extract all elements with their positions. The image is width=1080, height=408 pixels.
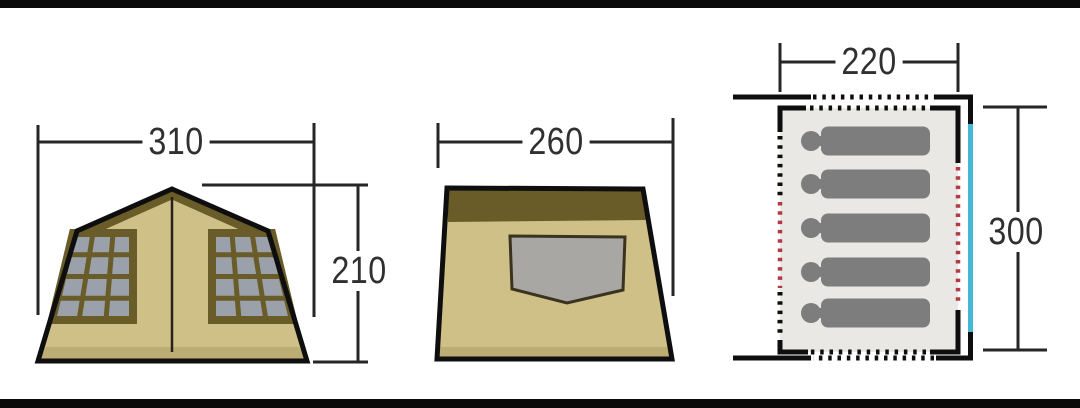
plan-length-label: 300 [982, 212, 1049, 252]
side-depth-label: 260 [522, 122, 589, 162]
front-width-label: 310 [142, 122, 209, 162]
plan-width-label: 220 [835, 42, 902, 82]
tent-front-graphic [38, 189, 307, 361]
tent-side-roof-band [447, 188, 646, 222]
tent-side-graphic [437, 188, 672, 359]
side-window [510, 236, 625, 303]
front-height-label: 210 [325, 251, 392, 291]
diagram-canvas [0, 0, 1080, 408]
tent-floor-plan [733, 43, 1047, 358]
bottom-letterbox-bar [0, 399, 1080, 408]
tent-spec-diagram: 310 210 260 220 300 [0, 0, 1080, 408]
